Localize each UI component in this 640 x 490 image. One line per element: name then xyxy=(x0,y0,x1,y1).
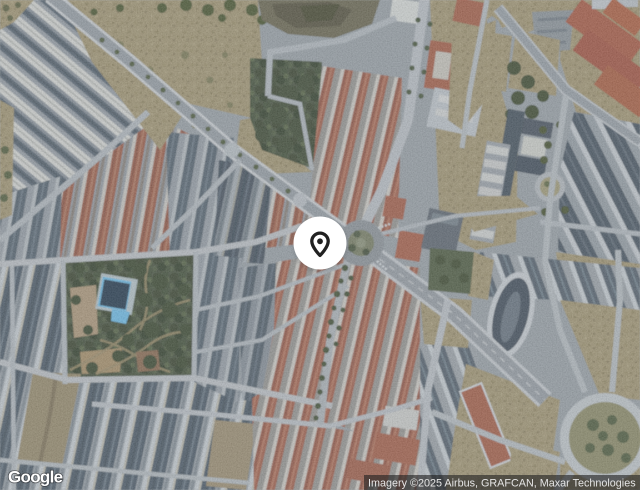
svg-text:Imagery ©2025 Airbus, GRAFCAN,: Imagery ©2025 Airbus, GRAFCAN, Maxar Tec… xyxy=(368,478,636,490)
svg-text:Google: Google xyxy=(8,468,63,487)
